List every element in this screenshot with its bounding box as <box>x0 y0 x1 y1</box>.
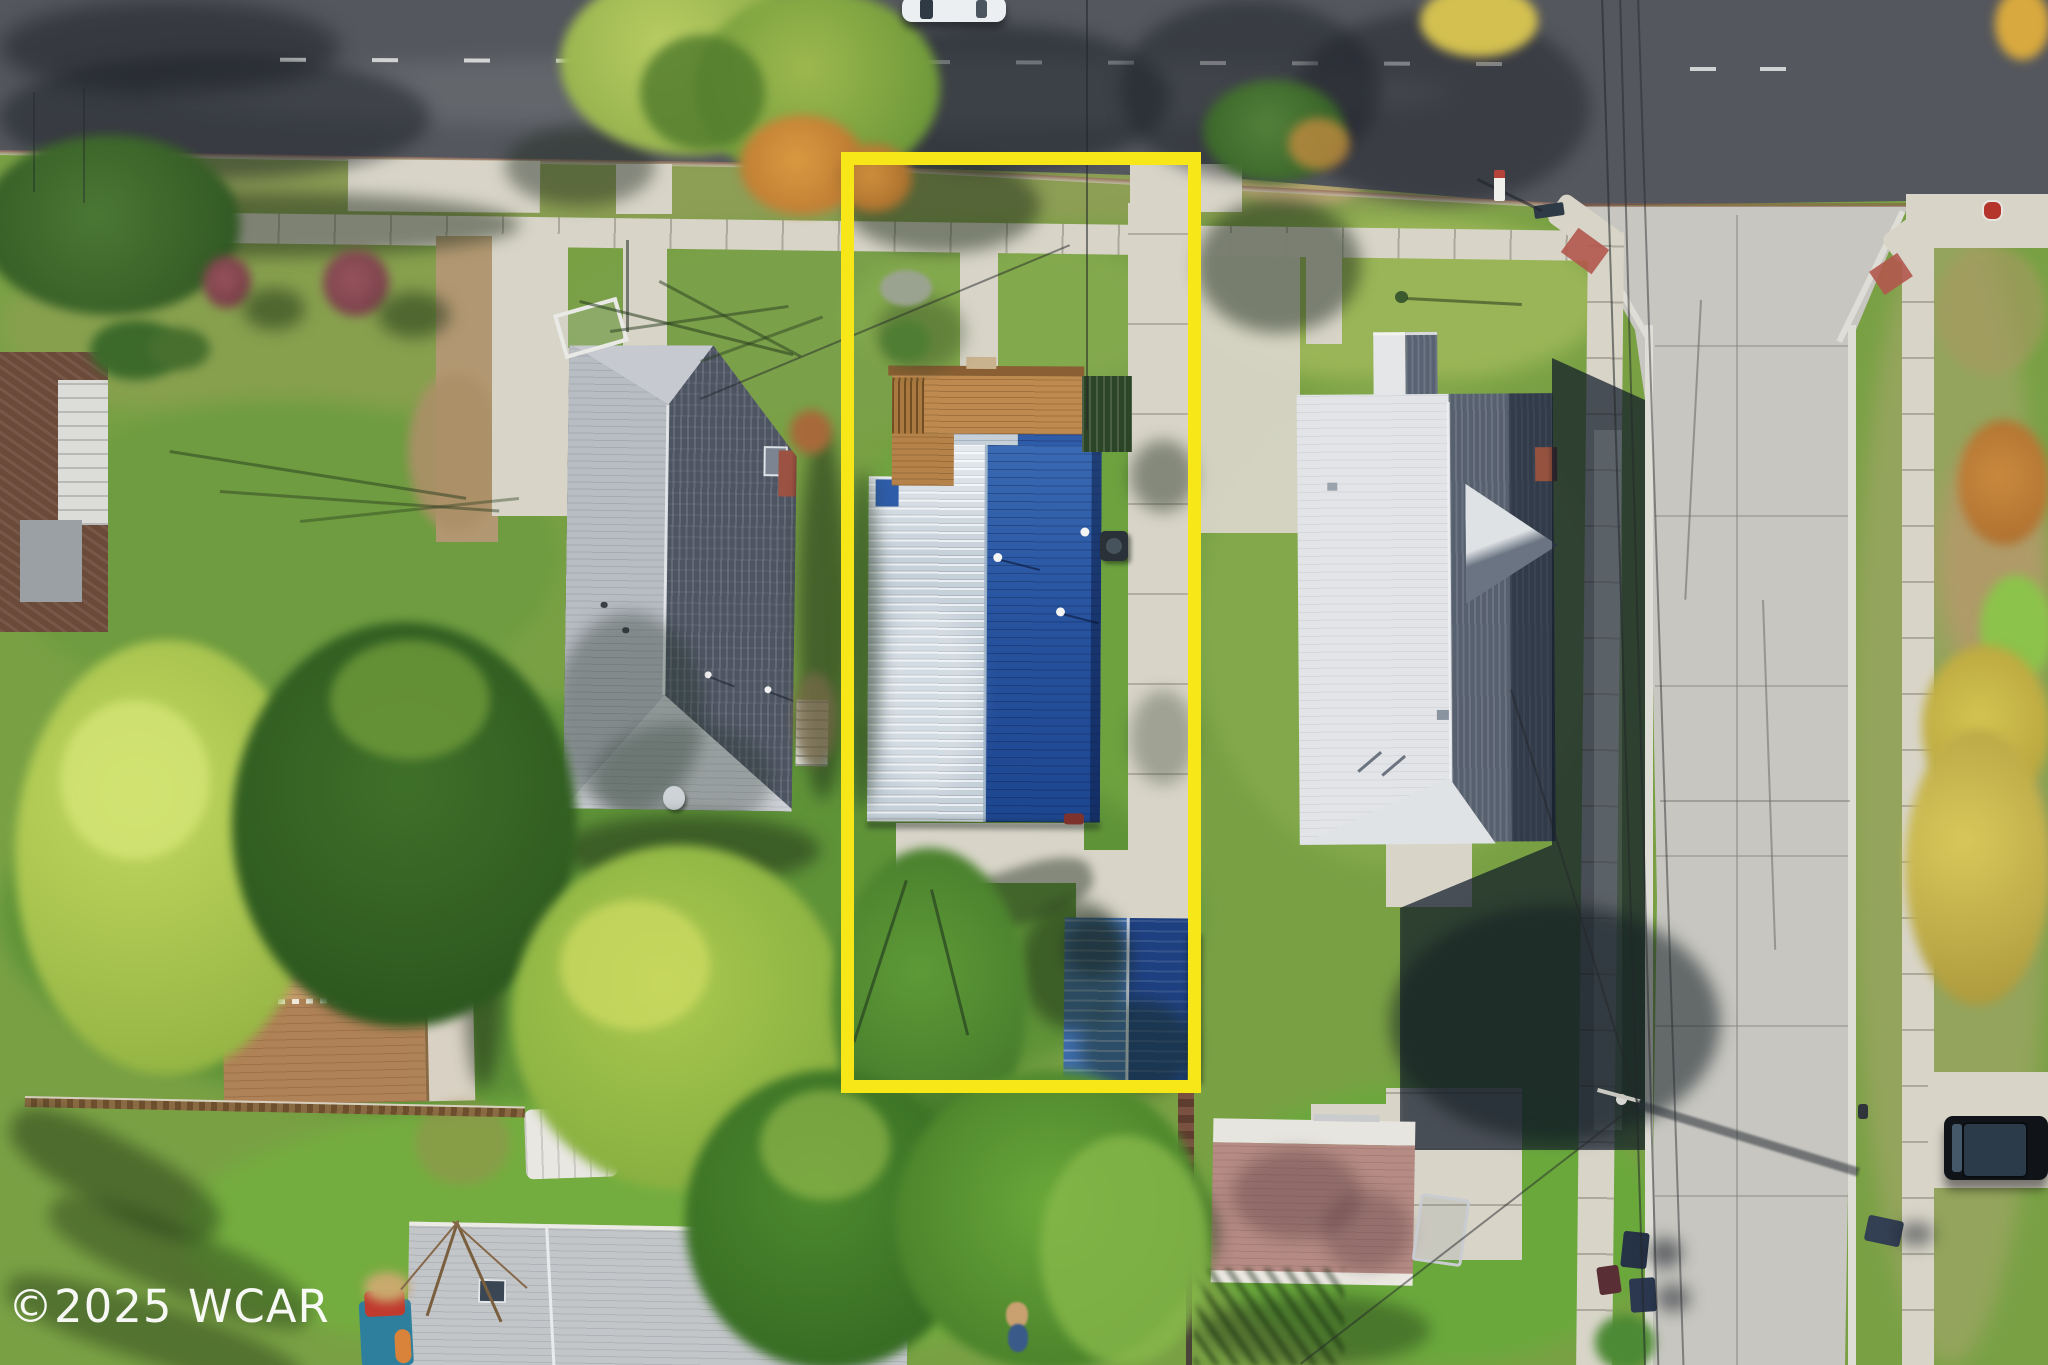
bin-shadow <box>1898 1222 1934 1246</box>
suv-glass <box>1962 1122 2028 1178</box>
far-left-house <box>0 352 108 632</box>
shrub-shadow <box>243 288 305 330</box>
curb <box>1848 325 1856 1365</box>
tree-highlight <box>330 640 490 760</box>
roof-vent <box>1327 483 1337 491</box>
shrub-shadow <box>378 292 450 338</box>
roof-vent <box>1437 710 1449 720</box>
ridge-cap <box>1213 1118 1415 1146</box>
figure-person-legs <box>1008 1324 1028 1352</box>
pole-shadow-line <box>626 240 629 332</box>
chimney <box>778 450 801 496</box>
sign-white <box>1494 170 1505 201</box>
road-seam <box>1655 200 1850 1365</box>
tree-highlight <box>560 900 710 1030</box>
satellite-dish <box>663 786 685 810</box>
tree-highlight <box>760 1090 890 1200</box>
garden-debris <box>793 672 837 766</box>
gray-panel <box>20 520 82 602</box>
tree-canopy-orange <box>1288 118 1350 170</box>
stop-sign <box>1982 200 2003 221</box>
power-line <box>83 88 85 203</box>
tree-shadow <box>1200 1295 1430 1365</box>
trash-bin <box>1620 1231 1650 1270</box>
white-addition <box>58 380 108 525</box>
black-suv <box>1944 1116 2048 1180</box>
rear-glass <box>976 0 987 18</box>
hedge <box>148 328 210 370</box>
shrub-orange <box>790 410 832 454</box>
white-car <box>902 0 1006 22</box>
property-boundary <box>841 152 1201 1093</box>
aerial-photo: ©2025 WCAR <box>0 0 2048 1365</box>
ridge-pipe <box>1313 1114 1379 1122</box>
roof-vent <box>601 602 608 608</box>
trash-bin-red <box>1596 1265 1622 1296</box>
shrub-red <box>203 256 251 308</box>
playset-slide <box>394 1329 412 1364</box>
tree-canopy-orange <box>1958 420 2048 545</box>
bin-shadow <box>1656 1284 1690 1312</box>
front-walk-left <box>623 236 667 348</box>
shrub-red <box>323 250 389 316</box>
right-neighbor-house <box>1296 331 1560 847</box>
tree-canopy <box>640 35 765 150</box>
tree-highlight <box>1040 1135 1210 1365</box>
tree-canopy-yellow <box>1905 730 2048 1005</box>
tree-shadow <box>1196 198 1361 333</box>
main-roof-west <box>1297 394 1452 845</box>
tree-highlight <box>60 700 210 860</box>
watermark: ©2025 WCAR <box>8 1280 330 1333</box>
corner-pad <box>1906 194 2048 248</box>
hydrant-right <box>1858 1104 1868 1119</box>
power-line <box>33 92 35 192</box>
road-crack <box>1660 800 1850 802</box>
pink-roof-outbuilding <box>1211 1118 1416 1288</box>
suv-windshield <box>1952 1124 1962 1172</box>
ridge-line <box>545 1228 555 1365</box>
bush <box>1595 1315 1655 1365</box>
curb <box>1645 325 1653 1365</box>
lane-markings <box>1690 67 1820 71</box>
leaf-litter <box>1936 245 2046 375</box>
windshield <box>920 0 933 19</box>
